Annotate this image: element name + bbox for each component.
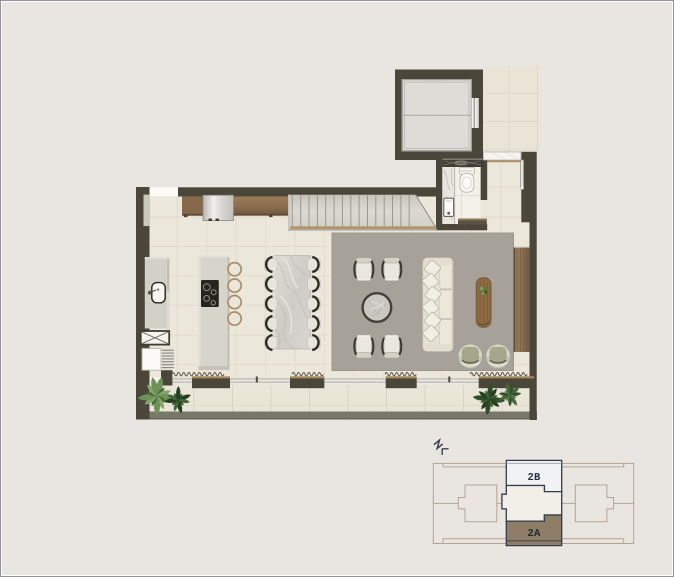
svg-text:2A: 2A <box>527 528 541 540</box>
svg-text:2B: 2B <box>527 472 541 484</box>
